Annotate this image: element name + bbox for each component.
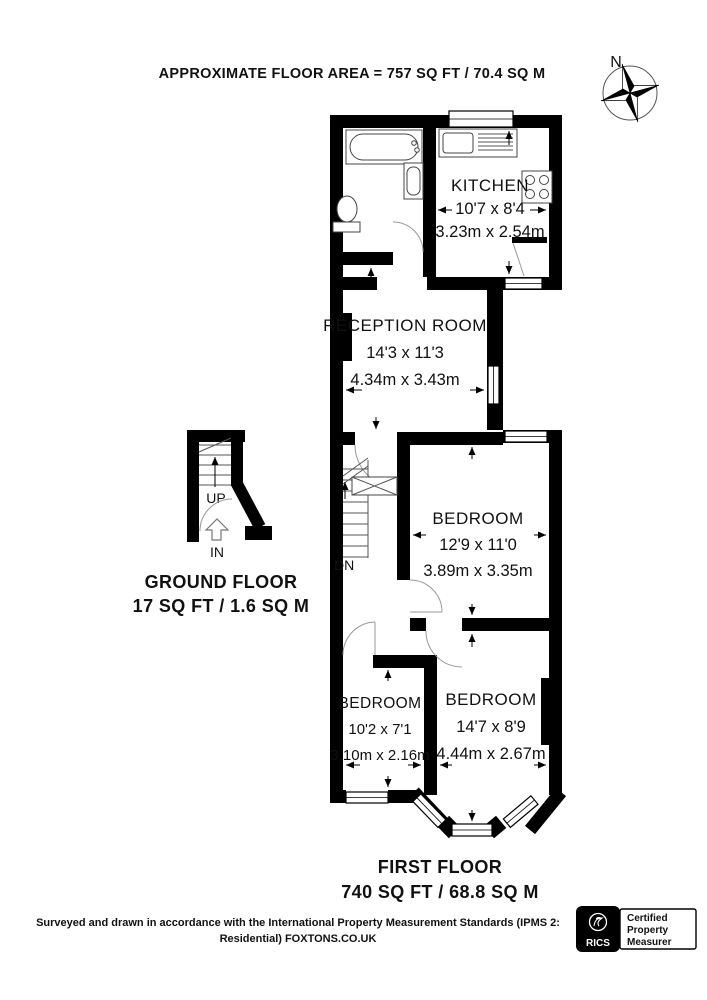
floorplan-page: APPROXIMATE FLOOR AREA = 757 SQ FT / 70.… — [0, 0, 707, 1000]
footer-line2: Residential) FOXTONS.CO.UK — [220, 933, 377, 945]
bedroom-middle-label: BEDROOM — [432, 509, 523, 528]
badge-line: Certified — [627, 913, 668, 924]
bedroom-right-dims-metric: 4.44m x 2.67m — [436, 745, 545, 763]
window — [505, 431, 547, 442]
floorplan-drawing: APPROXIMATE FLOOR AREA = 757 SQ FT / 70.… — [0, 0, 707, 1000]
door-arc — [393, 222, 423, 252]
kitchen-sink-icon — [439, 129, 517, 157]
wall — [187, 529, 199, 542]
window — [346, 792, 388, 803]
reception-dims-metric: 4.34m x 3.43m — [350, 371, 459, 389]
wall — [397, 445, 410, 580]
wall — [330, 790, 346, 803]
bedroom-left-label: BEDROOM — [339, 695, 422, 712]
bay-wall — [530, 792, 561, 830]
first-floor-area: 740 SQ FT / 68.8 SQ M — [341, 882, 538, 902]
ground-floor-plan: UP IN GROUND FLOOR 17 SQ FT / 1.6 SQ M — [133, 430, 310, 616]
staircase-up: UP — [199, 438, 231, 506]
entrance-arrow-icon — [206, 519, 228, 540]
bedroom-middle-dims-metric: 3.89m x 3.35m — [423, 562, 532, 580]
wall — [245, 526, 272, 540]
rics-brand-label: RICS — [586, 938, 610, 949]
wall — [373, 655, 424, 668]
ground-floor-area: 17 SQ FT / 1.6 SQ M — [133, 596, 310, 616]
wall — [462, 618, 562, 631]
rics-badge: RICS Certified Property Measurer — [576, 906, 696, 952]
wall — [330, 115, 562, 128]
wall — [236, 482, 260, 527]
first-floor-plan: DN KITCHEN 10'7 — [323, 111, 562, 838]
reception-label: RECEPTION ROOM — [323, 316, 487, 335]
wall — [330, 252, 393, 265]
window — [505, 278, 542, 289]
door-arc — [410, 580, 442, 612]
wall — [410, 618, 426, 631]
walls — [187, 430, 272, 542]
wall — [397, 432, 503, 445]
kitchen-label: KITCHEN — [451, 176, 529, 195]
footer-line1: Surveyed and drawn in accordance with th… — [36, 917, 560, 929]
wall — [343, 277, 377, 290]
reception-dims-imperial: 14'3 x 11'3 — [366, 344, 444, 362]
kitchen-dims-imperial: 10'7 x 8'4 — [455, 200, 525, 218]
bathtub-icon — [346, 130, 422, 164]
wall — [423, 128, 436, 277]
door-arc — [343, 622, 375, 655]
bedroom-right-dims-imperial: 14'7 x 8'9 — [456, 718, 526, 736]
kitchen-window — [449, 111, 513, 127]
bedroom-right-label: BEDROOM — [445, 690, 536, 709]
bedroom-left-dims-imperial: 10'2 x 7'1 — [348, 721, 411, 738]
stairs-down-label: DN — [334, 557, 354, 573]
staircase-down: DN — [334, 458, 397, 573]
ground-floor-title: GROUND FLOOR — [145, 572, 298, 592]
window — [488, 366, 499, 404]
badge-line: Measurer — [627, 937, 672, 948]
north-label: N — [610, 54, 622, 71]
chimney-breast — [541, 678, 562, 745]
basin-icon — [404, 163, 423, 199]
first-floor-title: FIRST FLOOR — [378, 857, 502, 877]
wall — [231, 430, 243, 486]
bay-window-centre — [452, 824, 492, 836]
wall — [487, 277, 503, 430]
wall — [427, 277, 487, 290]
door-leaf — [513, 243, 524, 276]
wall — [330, 432, 355, 445]
entrance-in-label: IN — [210, 544, 224, 560]
bedroom-middle-dims-imperial: 12'9 x 11'0 — [439, 536, 517, 554]
bedroom-left-dims-metric: 3.10m x 2.16m — [330, 747, 429, 764]
compass-icon: N — [593, 54, 666, 130]
badge-line: Property — [627, 925, 669, 936]
kitchen-dims-metric: 3.23m x 2.54m — [435, 223, 544, 241]
wall — [424, 655, 437, 795]
approx-floor-area-title: APPROXIMATE FLOOR AREA = 757 SQ FT / 70.… — [159, 66, 546, 82]
wall — [187, 430, 199, 542]
